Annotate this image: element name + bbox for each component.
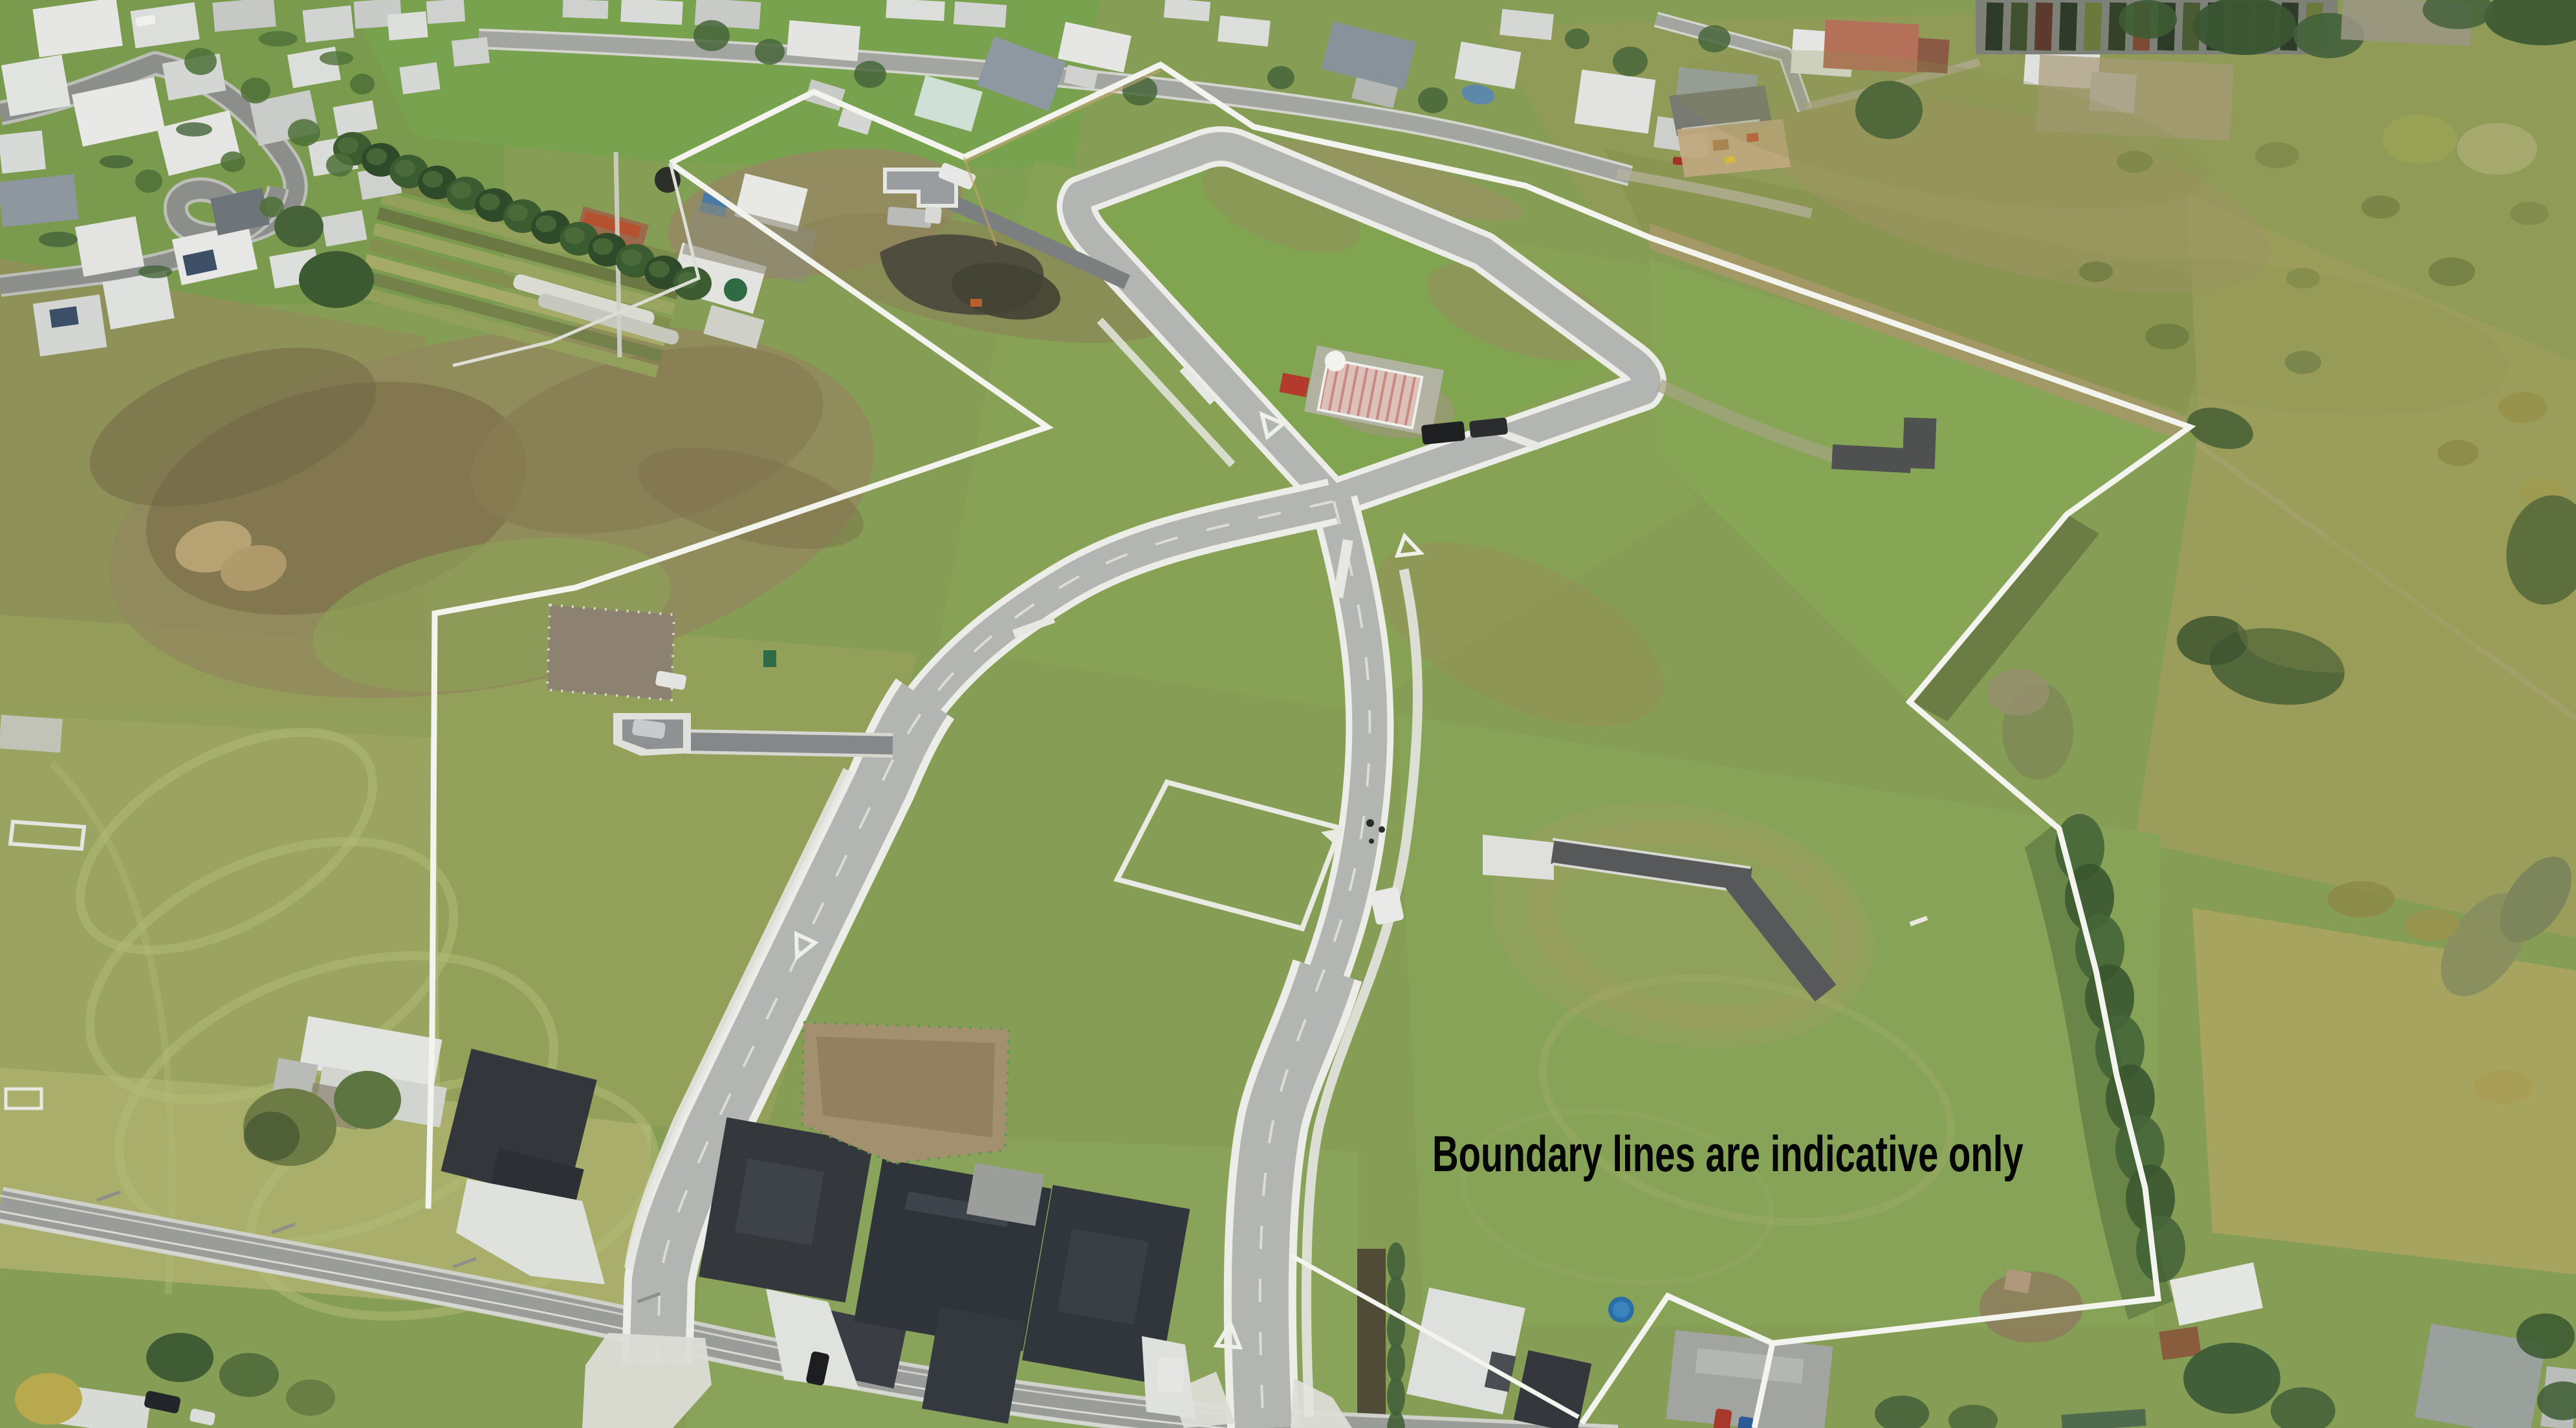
svg-text:Boundary lines are indicative: Boundary lines are indicative only	[1432, 1126, 2024, 1182]
